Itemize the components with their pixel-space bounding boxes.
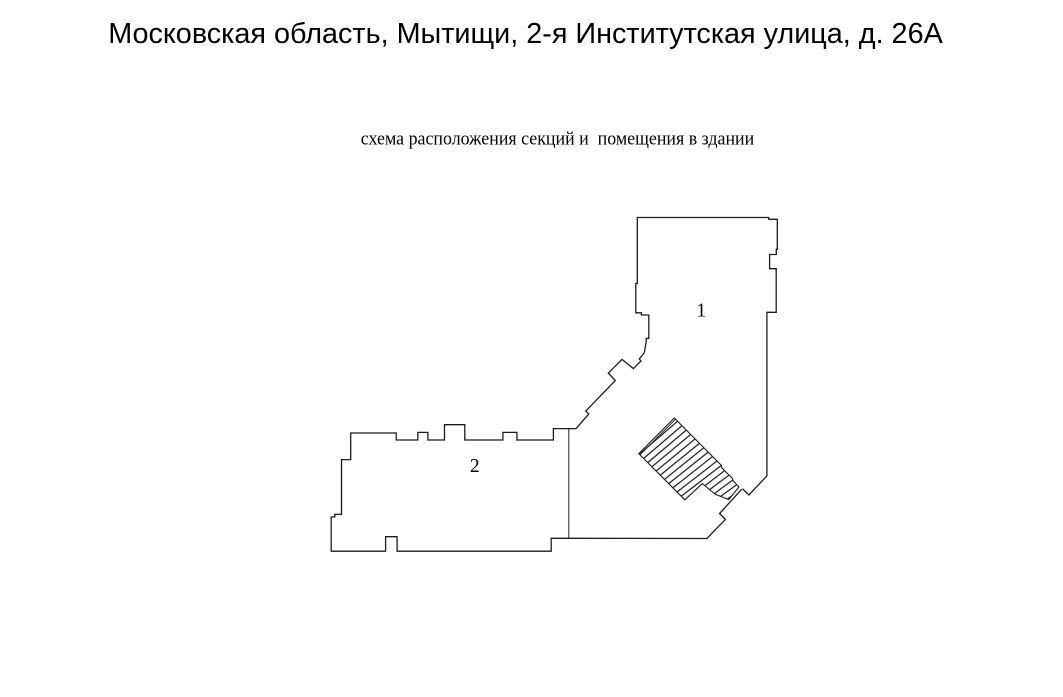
- svg-text:Московская область, Мытищи, 2-: Московская область, Мытищи, 2-я Институт…: [108, 18, 943, 50]
- svg-text:2: 2: [470, 456, 480, 477]
- svg-text:1: 1: [696, 300, 706, 321]
- svg-text:схема расположения секций и п: схема расположения секций и помещения в …: [361, 129, 754, 150]
